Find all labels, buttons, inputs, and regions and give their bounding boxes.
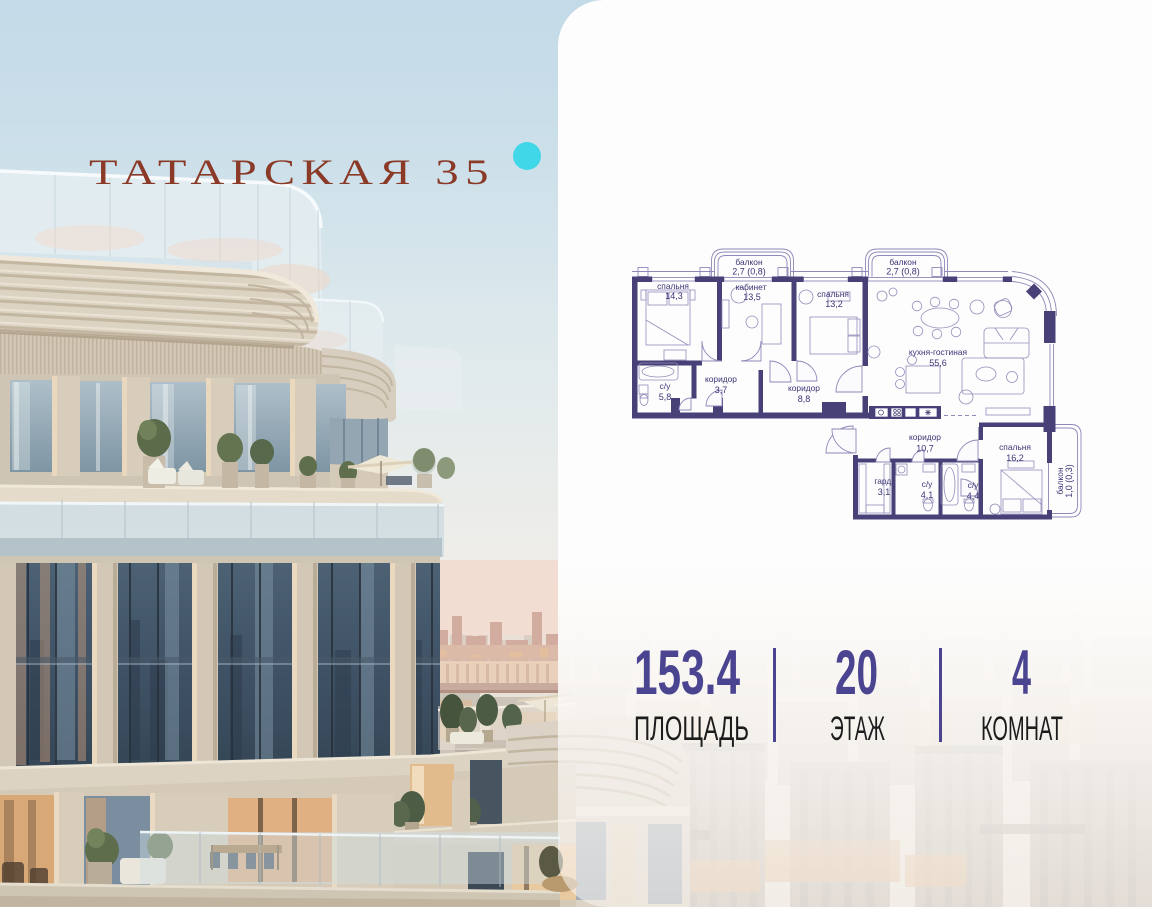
svg-text:ПЛОЩАДЬ: ПЛОЩАДЬ <box>634 710 749 748</box>
svg-text:с/у: с/у <box>968 480 980 490</box>
svg-text:20: 20 <box>835 638 878 708</box>
svg-text:4,1: 4,1 <box>921 490 934 500</box>
svg-text:5,8: 5,8 <box>659 392 672 402</box>
svg-text:1,0 (0,3): 1,0 (0,3) <box>1064 464 1074 498</box>
svg-text:кабинет: кабинет <box>736 282 767 292</box>
svg-text:ЭТАЖ: ЭТАЖ <box>830 710 885 748</box>
svg-text:2,7 (0,8): 2,7 (0,8) <box>732 267 766 277</box>
svg-text:153.4: 153.4 <box>634 638 740 708</box>
svg-text:3,7: 3,7 <box>715 385 728 395</box>
svg-text:10,7: 10,7 <box>916 444 934 454</box>
svg-text:ТАТАРСКАЯ 35: ТАТАРСКАЯ 35 <box>89 152 495 192</box>
svg-text:спальня: спальня <box>657 281 689 291</box>
svg-text:55,6: 55,6 <box>929 358 947 368</box>
svg-text:с/у: с/у <box>922 479 934 489</box>
svg-text:коридор: коридор <box>788 383 820 393</box>
svg-text:13,2: 13,2 <box>825 299 843 309</box>
svg-text:балкон: балкон <box>735 257 763 267</box>
svg-text:спальня: спальня <box>817 289 849 299</box>
svg-text:КОМНАТ: КОМНАТ <box>981 710 1063 748</box>
svg-text:3,1: 3,1 <box>878 487 891 497</box>
svg-text:спальня: спальня <box>999 442 1031 452</box>
svg-text:балкон: балкон <box>889 257 917 267</box>
svg-text:гард.: гард. <box>874 476 893 486</box>
svg-text:16,2: 16,2 <box>1006 453 1024 463</box>
svg-text:14,3: 14,3 <box>665 291 683 301</box>
svg-text:коридор: коридор <box>909 432 941 442</box>
svg-text:4,4: 4,4 <box>967 491 980 501</box>
svg-text:с/у: с/у <box>660 381 672 391</box>
svg-text:4: 4 <box>1012 638 1031 708</box>
svg-text:кухня-гостиная: кухня-гостиная <box>909 347 967 357</box>
svg-text:2,7 (0,8): 2,7 (0,8) <box>886 267 920 277</box>
svg-text:коридор: коридор <box>705 374 737 384</box>
svg-text:13,5: 13,5 <box>743 292 761 302</box>
svg-text:8,8: 8,8 <box>798 394 811 404</box>
